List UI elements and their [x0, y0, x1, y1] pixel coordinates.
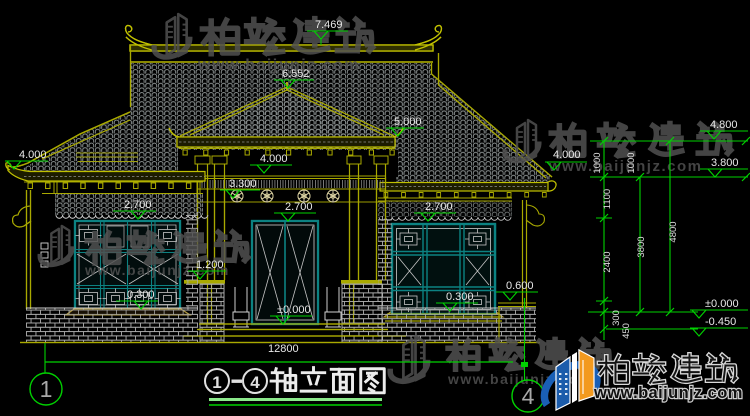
- svg-text:www.baijunjz.com: www.baijunjz.com: [447, 371, 593, 387]
- svg-text:5.000: 5.000: [394, 116, 422, 128]
- svg-text:450: 450: [621, 323, 632, 339]
- svg-text:±0.000: ±0.000: [705, 298, 739, 310]
- svg-text:4.000: 4.000: [260, 153, 288, 165]
- svg-text:7.469: 7.469: [315, 19, 343, 31]
- svg-text:www.baijunjz.com: www.baijunjz.com: [197, 57, 360, 74]
- svg-text:1000: 1000: [592, 152, 603, 173]
- svg-text:12800: 12800: [268, 343, 299, 355]
- svg-text:3800: 3800: [636, 236, 647, 257]
- svg-text:1000: 1000: [626, 152, 637, 173]
- svg-text:2.700: 2.700: [425, 201, 453, 213]
- svg-text:1.200: 1.200: [196, 259, 224, 271]
- svg-text:0.300: 0.300: [446, 291, 474, 303]
- svg-text:4: 4: [522, 383, 535, 409]
- svg-text:1: 1: [40, 376, 53, 402]
- svg-text:6.552: 6.552: [282, 68, 310, 80]
- svg-text:4.000: 4.000: [19, 149, 47, 161]
- svg-text:2400: 2400: [602, 251, 613, 272]
- svg-text:1: 1: [212, 373, 221, 392]
- svg-text:0.300: 0.300: [127, 289, 155, 301]
- svg-text:3.300: 3.300: [229, 178, 257, 190]
- svg-text:4800: 4800: [668, 221, 679, 242]
- svg-text:0.600: 0.600: [506, 280, 534, 292]
- svg-text:2.700: 2.700: [285, 201, 313, 213]
- svg-text:4: 4: [250, 373, 260, 392]
- svg-text:±0.000: ±0.000: [277, 304, 311, 316]
- svg-text:4.000: 4.000: [553, 149, 581, 161]
- svg-text:1100: 1100: [602, 189, 613, 209]
- svg-text:4.800: 4.800: [710, 119, 738, 131]
- svg-text:2.700: 2.700: [124, 199, 152, 211]
- svg-text:www.baijunjz.com: www.baijunjz.com: [593, 384, 743, 402]
- svg-text:-0.450: -0.450: [705, 316, 736, 328]
- svg-text:3.800: 3.800: [711, 157, 739, 169]
